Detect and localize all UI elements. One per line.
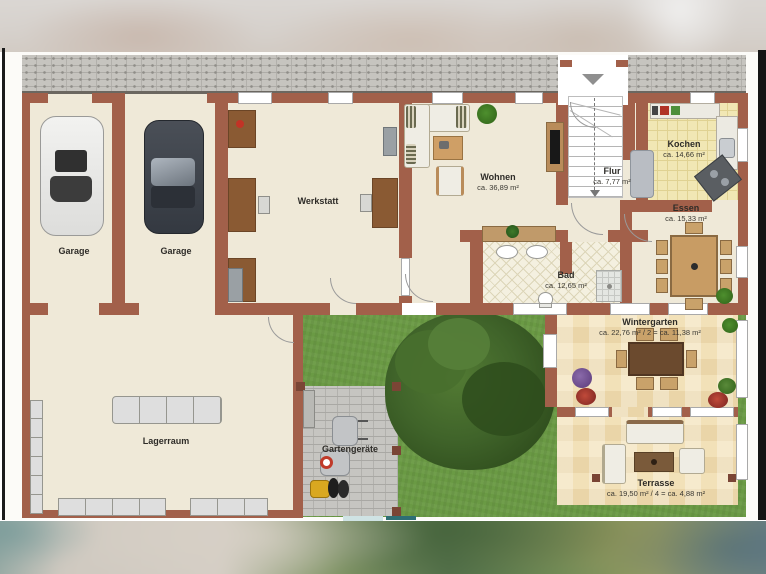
bad-west-wall <box>470 242 483 315</box>
fence-post <box>392 382 401 391</box>
tv-screen <box>550 130 560 164</box>
window <box>690 407 734 417</box>
garden-shelf <box>303 390 315 428</box>
window <box>652 407 682 417</box>
storage-shelf <box>30 400 43 514</box>
window <box>432 92 463 104</box>
room-label-werkstatt: Werkstatt <box>298 196 339 207</box>
room-area: ca. 22,76 m² / 2 = ca. 11,38 m² <box>599 328 701 337</box>
wheelbarrow-handle <box>358 438 368 440</box>
room-name: Terrasse <box>638 478 675 488</box>
workshop-cabinet <box>228 268 243 302</box>
room-area: ca. 7,77 m² <box>593 177 631 186</box>
sideboard <box>482 226 556 242</box>
room-label-garage-right: Garage <box>160 246 191 257</box>
exterior-brick-wall <box>22 55 746 93</box>
terrace-post <box>728 474 736 482</box>
dining-chair <box>656 259 668 274</box>
fence-post <box>392 507 401 516</box>
kitchen-hob-red <box>660 106 669 115</box>
room-name: Essen <box>673 203 700 213</box>
room-name: Flur <box>603 166 620 176</box>
sofa-pillow <box>406 144 416 164</box>
room-label-wohnen: Wohnen ca. 36,89 m² <box>477 172 519 192</box>
room-name: Garage <box>58 246 89 256</box>
window <box>610 303 650 315</box>
window <box>736 424 748 480</box>
stove-burner <box>710 170 718 178</box>
flower-purple <box>572 368 592 388</box>
sofa-pillow <box>406 106 416 128</box>
room-label-terrasse: Terrasse ca. 19,50 m² / 4 = ca. 4,88 m² <box>607 478 705 498</box>
dining-chair <box>656 278 668 293</box>
room-label-bad: Bad ca. 12,65 m² <box>545 270 587 290</box>
room-area: ca. 15,33 m² <box>665 214 707 223</box>
workbench-stool <box>258 196 270 214</box>
staircase-direction-arrow <box>590 190 600 197</box>
plant <box>716 288 733 304</box>
fence-post <box>392 446 401 455</box>
workshop-machine <box>383 127 397 156</box>
window <box>575 407 609 417</box>
outdoor-table-center <box>651 459 657 465</box>
bathroom-sink <box>496 245 518 259</box>
terrasse-door-opening <box>612 407 648 417</box>
room-name: Bad <box>557 270 574 280</box>
entrance-jamb <box>616 60 628 67</box>
lagerraum-east-wall <box>293 315 303 518</box>
room-name: Wohnen <box>480 172 515 182</box>
east-outer-wall <box>738 93 748 315</box>
werkstatt-south-wall <box>215 303 330 315</box>
room-label-gartengeraete: Gartengeräte <box>322 444 378 455</box>
door-opening <box>402 303 436 315</box>
storage-shelf <box>190 498 268 516</box>
car-dark-roof <box>151 186 195 208</box>
lawn-mower-wheel <box>338 480 349 498</box>
west-wall-cap <box>22 303 48 315</box>
right-frame-edge <box>758 50 766 520</box>
workbench <box>228 110 256 148</box>
blurred-photo-top <box>0 0 766 52</box>
wg-table <box>628 342 684 376</box>
dining-table-center <box>691 263 698 270</box>
hall-bench <box>630 150 654 198</box>
car-white-sunroof <box>55 150 87 172</box>
plant <box>477 104 497 124</box>
armchair <box>436 166 464 196</box>
wheelbarrow <box>332 416 358 446</box>
toilet-tank <box>539 303 552 308</box>
north-wall <box>207 93 738 103</box>
room-label-kochen: Kochen ca. 14,66 m² <box>663 139 705 159</box>
room-name: Kochen <box>667 139 700 149</box>
sofa-pillow <box>456 106 467 128</box>
room-label-essen: Essen ca. 15,33 m² <box>665 203 707 223</box>
entrance-jamb <box>560 60 572 67</box>
storage-shelf <box>58 498 166 516</box>
tree-foliage-blob <box>428 318 490 370</box>
window <box>543 334 557 368</box>
sideboard-plant <box>506 225 519 238</box>
entrance-arrow-icon <box>582 74 604 85</box>
garage-divider-cap <box>99 303 139 315</box>
wg-chair <box>686 350 697 368</box>
terrace-post <box>592 474 600 482</box>
wg-chair <box>636 377 654 390</box>
bathroom-sink <box>526 245 548 259</box>
workbench <box>228 178 256 232</box>
flower-red <box>576 388 596 405</box>
window <box>238 92 272 104</box>
room-name: Werkstatt <box>298 196 339 206</box>
room-area: ca. 14,66 m² <box>663 150 705 159</box>
dining-chair <box>685 298 703 310</box>
window <box>736 320 748 398</box>
window <box>736 246 748 278</box>
dining-chair <box>656 240 668 255</box>
dining-chair <box>720 259 732 274</box>
room-area: ca. 19,50 m² / 4 = ca. 4,88 m² <box>607 489 705 498</box>
kitchen-hob-green <box>671 106 680 115</box>
flower-red <box>708 392 728 408</box>
storage-shelf <box>112 396 222 424</box>
floor-plan-screenshot: Garage Garage Werkstatt Wohnen ca. 36,89… <box>0 0 766 574</box>
room-area: ca. 12,65 m² <box>545 281 587 290</box>
blurred-photo-bottom <box>0 521 766 574</box>
dining-chair <box>720 240 732 255</box>
tree-foliage-blob <box>462 362 546 436</box>
garden-roller-wheel <box>320 456 333 469</box>
room-label-wintergarten: Wintergarten ca. 22,76 m² / 2 = ca. 11,3… <box>599 317 701 337</box>
werkstatt-divider-wall <box>215 93 228 305</box>
room-name: Wintergarten <box>622 317 677 327</box>
room-label-lagerraum: Lagerraum <box>143 436 190 447</box>
room-name: Gartengeräte <box>322 444 378 454</box>
plan-edge-artifact <box>386 516 416 520</box>
shower-drain <box>607 284 612 289</box>
kitchen-appliance <box>652 106 658 115</box>
car-white-windshield <box>50 176 92 202</box>
lawn-mower-body <box>310 480 330 498</box>
window <box>515 92 543 104</box>
room-name: Lagerraum <box>143 436 190 446</box>
blurred-photo-top-texture <box>0 0 766 52</box>
left-frame-edge <box>2 48 5 520</box>
blurred-photo-bottom-texture <box>0 521 766 574</box>
room-name: Garage <box>160 246 191 256</box>
wg-chair <box>660 377 678 390</box>
room-label-garage-left: Garage <box>58 246 89 257</box>
workbench-tool <box>236 120 244 128</box>
wheelbarrow-handle <box>358 420 368 422</box>
wg-chair <box>616 350 627 368</box>
outdoor-sofa <box>626 420 684 444</box>
car-dark-windshield <box>151 158 195 186</box>
lounge-chair <box>679 448 705 474</box>
stove-burner <box>721 178 729 186</box>
dining-chair <box>685 222 703 234</box>
workbench-stool <box>360 194 372 212</box>
workbench <box>372 178 398 228</box>
window <box>328 92 353 104</box>
garage-divider-wall <box>112 93 125 305</box>
room-label-flur: Flur ca. 7,77 m² <box>593 166 631 186</box>
coffee-table-items <box>439 141 449 149</box>
room-area: ca. 36,89 m² <box>477 183 519 192</box>
plant <box>722 318 738 333</box>
